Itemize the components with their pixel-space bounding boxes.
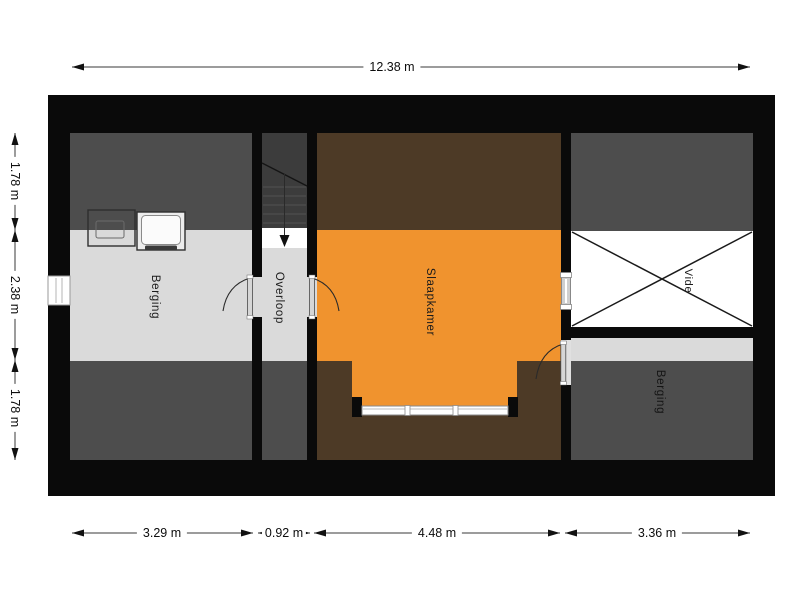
room-vide-low-top: [571, 133, 753, 231]
dim-label-left-1: 1.78 m: [8, 157, 22, 205]
room-berging-left-low-top: [70, 133, 252, 230]
dim-label-bottom-2: 0.92 m: [262, 526, 306, 540]
doorway-overloop-slaapkamer: [307, 277, 317, 317]
dim-label-bottom-1: 3.29 m: [137, 526, 187, 540]
arrow-right-icon: [738, 64, 750, 71]
arrow-left-icon: [72, 64, 84, 71]
room-label-slaapkamer: Slaapkamer: [424, 268, 436, 336]
floorplan-canvas: Berging Overloop Slaapkamer Vide Berging…: [0, 0, 800, 600]
slaapkamer-dormer-bay: [352, 361, 517, 397]
room-slaapkamer-low-top: [317, 133, 561, 230]
room-berging-right-floor: [571, 338, 753, 361]
dim-label-bottom-4: 3.36 m: [632, 526, 682, 540]
room-label-overloop: Overloop: [273, 272, 285, 324]
dim-label-bottom-3: 4.48 m: [412, 526, 462, 540]
room-overloop-low-bottom: [262, 361, 307, 460]
dim-label-left-2: 2.38 m: [8, 271, 22, 319]
dim-label-left-3: 1.78 m: [8, 384, 22, 432]
dim-label-top-total: 12.38 m: [363, 60, 420, 74]
room-berging-left-low-bottom: [70, 361, 252, 460]
room-label-berging-right: Berging: [654, 370, 666, 414]
stairs-landing-strip: [262, 228, 307, 248]
room-slaapkamer-floor: [317, 230, 561, 361]
room-berging-left-floor: [70, 230, 252, 361]
stairs-area: [262, 133, 307, 228]
doorway-slaapkamer-berging-right: [561, 340, 571, 385]
room-vide-opening: [571, 231, 753, 327]
room-label-vide: Vide: [682, 269, 694, 293]
room-label-berging-left: Berging: [149, 275, 161, 319]
doorway-berging-overloop: [252, 277, 262, 317]
slaapkamer-dormer-bay-inner: [362, 397, 508, 407]
